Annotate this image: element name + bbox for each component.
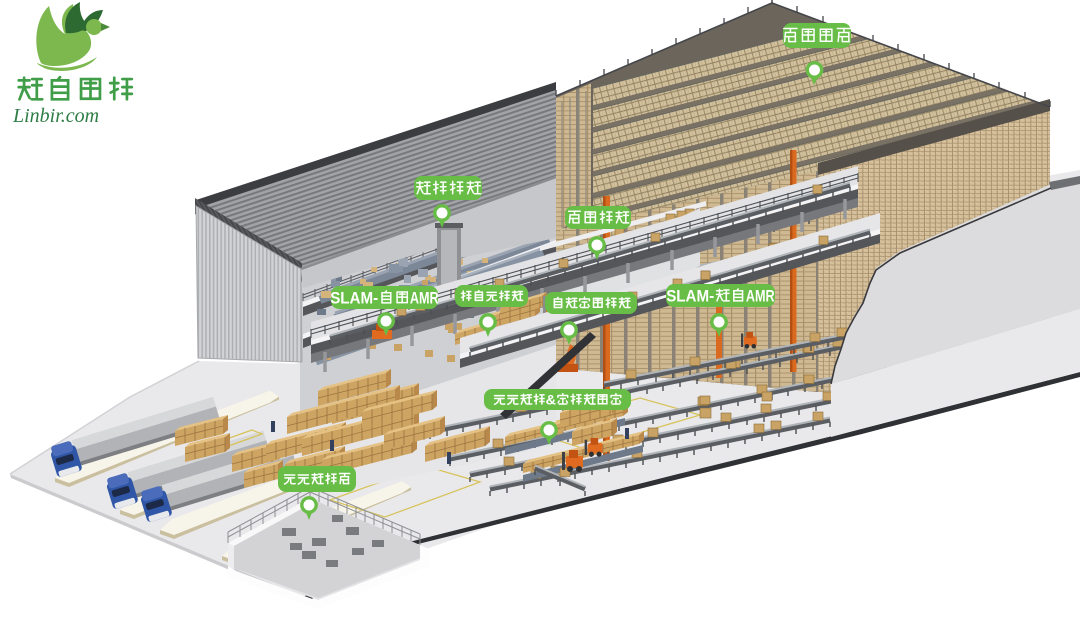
svg-text:AMR: AMR	[410, 289, 439, 307]
svg-text:SLAM-: SLAM-	[330, 289, 378, 307]
svg-text:Linbir.com: Linbir.com	[12, 105, 99, 127]
svg-text:AMR: AMR	[746, 287, 775, 305]
svg-text:SLAM-: SLAM-	[666, 287, 714, 305]
svg-text:&: &	[546, 392, 557, 407]
